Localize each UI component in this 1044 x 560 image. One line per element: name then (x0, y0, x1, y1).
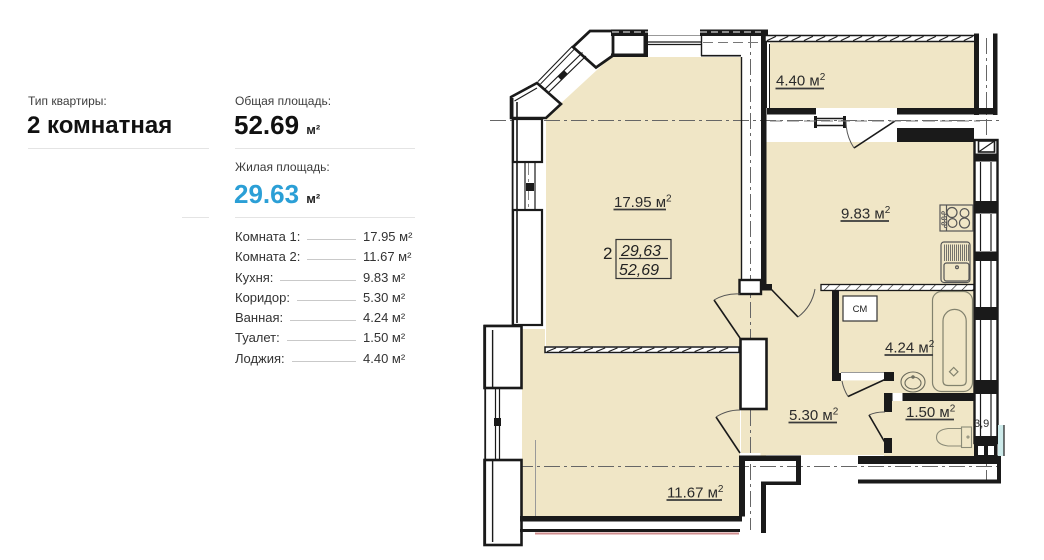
svg-text:17.95 м2: 17.95 м2 (614, 194, 672, 212)
svg-text:4.40 м2: 4.40 м2 (776, 72, 826, 90)
svg-text:4.24 м2: 4.24 м2 (885, 339, 935, 357)
svg-text:СМ: СМ (853, 304, 868, 315)
svg-text:9.83 м2: 9.83 м2 (841, 205, 891, 223)
svg-text:1.50 м2: 1.50 м2 (906, 404, 956, 422)
svg-text:5.30 м2: 5.30 м2 (789, 407, 839, 425)
svg-text:2: 2 (603, 244, 612, 263)
svg-text:52,69: 52,69 (619, 262, 659, 279)
svg-text:29,63: 29,63 (620, 243, 661, 260)
svg-text:11.67 м2: 11.67 м2 (667, 484, 724, 502)
svg-text:3,9: 3,9 (974, 418, 989, 430)
